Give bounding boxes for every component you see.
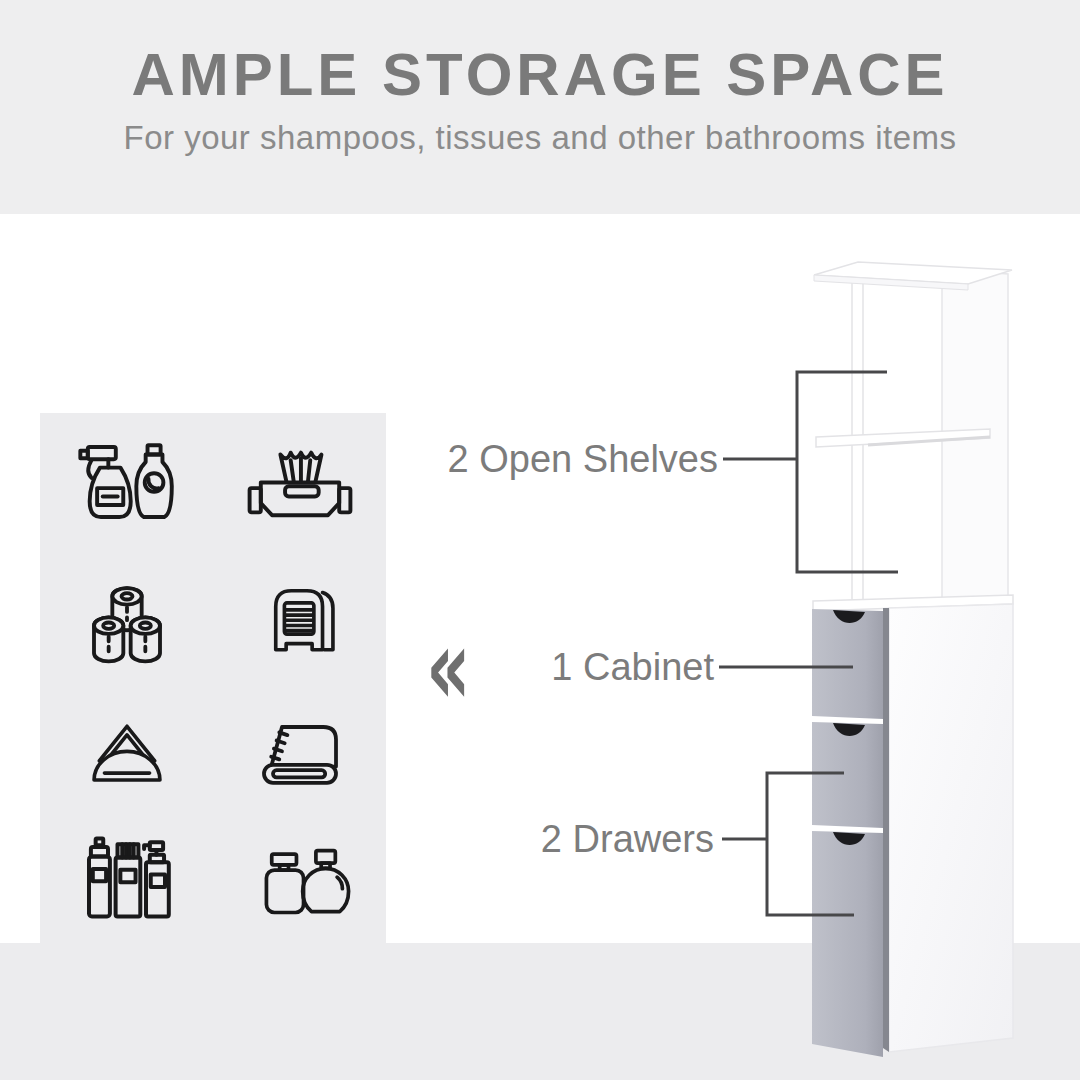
drawers-bracket bbox=[767, 773, 854, 915]
floor-band bbox=[0, 943, 1080, 1080]
folded-towel-icon bbox=[244, 700, 356, 808]
drawer-1-handle-notch bbox=[833, 723, 865, 736]
cleaning-spray-bottle-icon bbox=[71, 434, 183, 546]
drawer-2-handle-notch bbox=[833, 832, 865, 845]
tissue-dispenser-icon bbox=[248, 568, 352, 676]
callout-label-cabinet: 1 Cabinet bbox=[551, 641, 714, 693]
door-handle-notch bbox=[833, 610, 865, 623]
drawer-1 bbox=[812, 722, 883, 828]
bathroom-items-panel bbox=[40, 413, 386, 943]
toilet-paper-rolls-icon bbox=[72, 567, 182, 677]
subheadline: For your shampoos, tissues and other bat… bbox=[0, 118, 1080, 158]
wet-wipes-icon bbox=[242, 434, 358, 546]
open-shelves-bracket bbox=[797, 372, 898, 572]
toiletry-bottles-icon bbox=[70, 829, 184, 943]
napkin-holder-icon bbox=[73, 702, 181, 806]
callout-label-open-shelves: 2 Open Shelves bbox=[448, 433, 718, 485]
headline: AMPLE STORAGE SPACE bbox=[0, 0, 1080, 106]
callout-label-drawers: 2 Drawers bbox=[541, 813, 714, 865]
double-chevron-icon: « bbox=[426, 617, 476, 718]
header-banner: AMPLE STORAGE SPACE For your shampoos, t… bbox=[0, 0, 1080, 214]
product-infographic: AMPLE STORAGE SPACE For your shampoos, t… bbox=[0, 0, 1080, 1080]
perfume-bottles-icon bbox=[243, 833, 357, 939]
open-shelf-unit bbox=[813, 262, 1013, 611]
cabinet-door bbox=[812, 609, 883, 719]
